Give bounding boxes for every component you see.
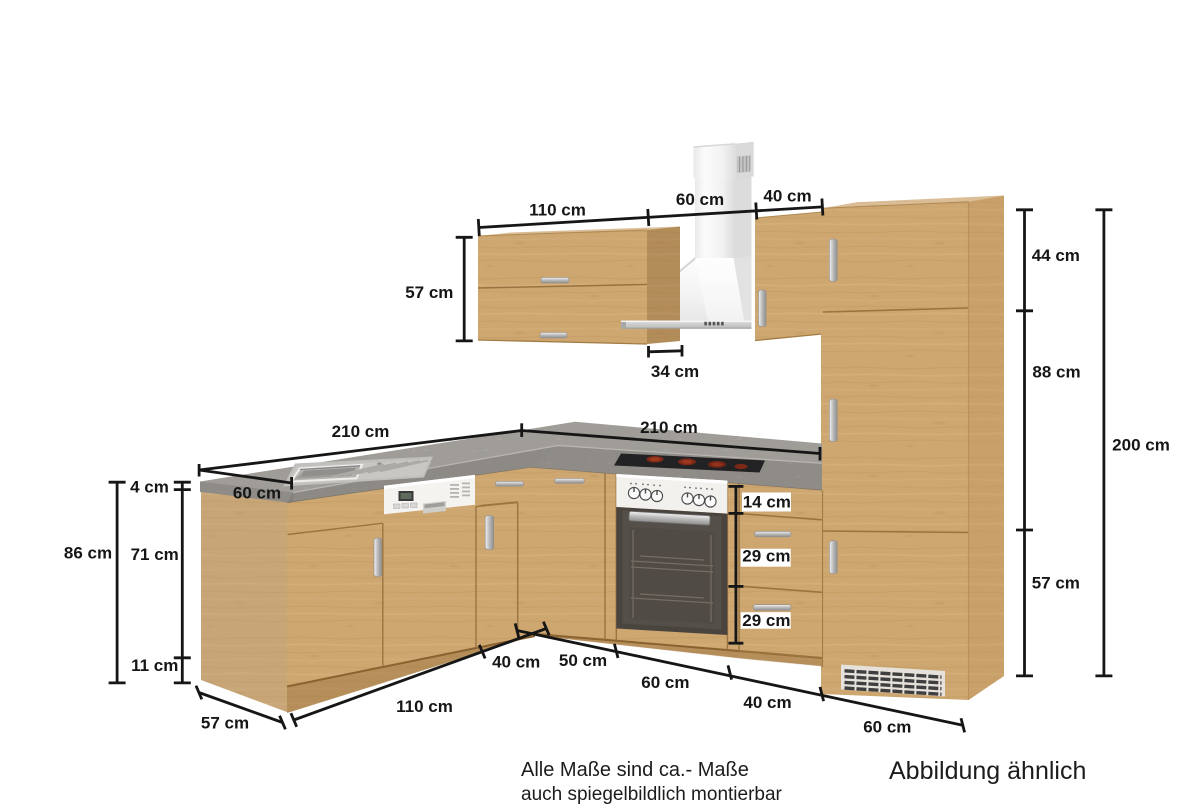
svg-text:29 cm: 29 cm: [742, 611, 790, 630]
svg-text:60 cm: 60 cm: [233, 483, 281, 502]
svg-text:40 cm: 40 cm: [492, 653, 540, 672]
svg-text:57 cm: 57 cm: [201, 714, 249, 733]
svg-text:88 cm: 88 cm: [1032, 363, 1080, 382]
svg-text:auch spiegelbildlich montierba: auch spiegelbildlich montierbar: [521, 784, 783, 805]
svg-text:71 cm: 71 cm: [131, 545, 179, 564]
svg-text:110 cm: 110 cm: [396, 697, 453, 716]
svg-text:29 cm: 29 cm: [742, 547, 790, 566]
svg-text:60 cm: 60 cm: [676, 190, 724, 209]
svg-text:Alle Maße sind ca.- Maße: Alle Maße sind ca.- Maße: [521, 759, 749, 781]
svg-text:11 cm: 11 cm: [131, 656, 178, 675]
svg-text:40 cm: 40 cm: [763, 187, 811, 206]
svg-text:14 cm: 14 cm: [743, 493, 791, 512]
svg-text:40 cm: 40 cm: [743, 693, 791, 712]
svg-text:200 cm: 200 cm: [1112, 436, 1170, 455]
svg-text:Abbildung ähnlich: Abbildung ähnlich: [889, 757, 1086, 785]
svg-text:44 cm: 44 cm: [1032, 246, 1080, 265]
svg-text:86 cm: 86 cm: [64, 544, 112, 563]
svg-text:110 cm: 110 cm: [529, 201, 586, 220]
svg-text:50 cm: 50 cm: [559, 651, 607, 670]
svg-text:210 cm: 210 cm: [332, 422, 390, 441]
svg-text:60 cm: 60 cm: [863, 717, 911, 736]
svg-text:60 cm: 60 cm: [641, 673, 689, 692]
svg-text:34 cm: 34 cm: [651, 362, 699, 381]
svg-text:4 cm: 4 cm: [130, 477, 169, 496]
svg-text:57 cm: 57 cm: [405, 283, 453, 302]
svg-text:210 cm: 210 cm: [640, 418, 698, 437]
svg-text:57 cm: 57 cm: [1032, 574, 1080, 593]
